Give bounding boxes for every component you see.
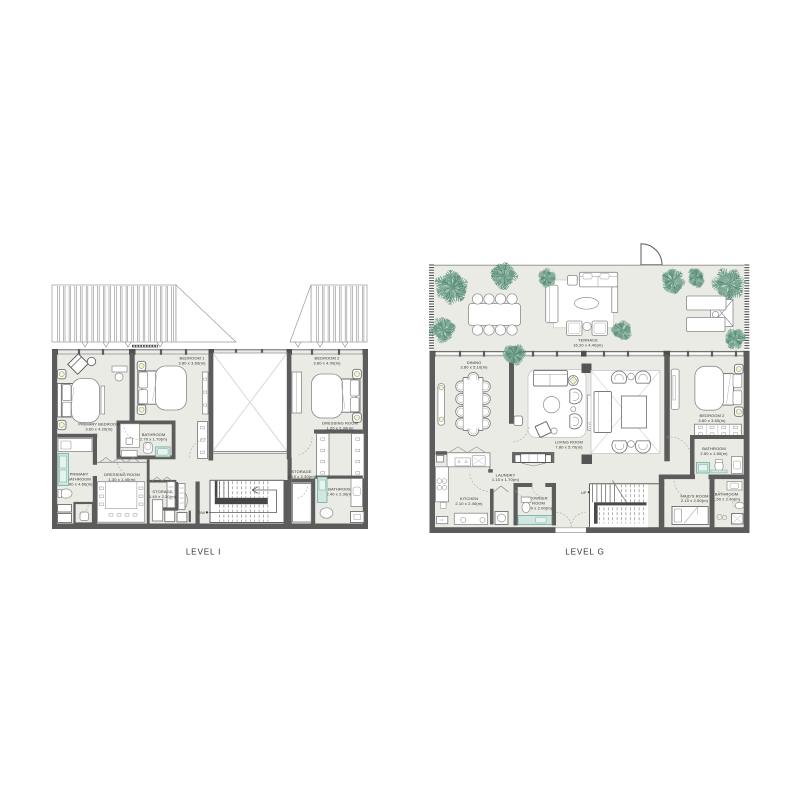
svg-text:1.50 x 2.40(m): 1.50 x 2.40(m) [713, 496, 741, 501]
svg-text:DW: DW [199, 511, 206, 515]
svg-text:1.20 x 2.30(m): 1.20 x 2.30(m) [326, 425, 354, 430]
svg-text:1.10 x 1.70(m): 1.10 x 1.70(m) [492, 477, 520, 482]
svg-text:3.80 x 5.10(m): 3.80 x 5.10(m) [460, 365, 488, 370]
svg-text:3.60 x 4.20(m): 3.60 x 4.20(m) [85, 426, 113, 431]
svg-text:1.90 x 4.60(m): 1.90 x 4.60(m) [65, 481, 93, 486]
svg-text:7.80 x 5.70(m): 7.80 x 5.70(m) [555, 444, 583, 449]
svg-text:LEVEL G: LEVEL G [565, 548, 604, 557]
svg-text:LEVEL I: LEVEL I [186, 548, 221, 557]
svg-text:1.40 x 2.20(m): 1.40 x 2.20(m) [149, 494, 177, 499]
svg-text:1.10 x 2.30(m): 1.10 x 2.30(m) [288, 474, 316, 479]
svg-text:UP: UP [581, 491, 587, 495]
svg-text:2.50 x 1.80(m): 2.50 x 1.80(m) [700, 451, 728, 456]
svg-text:1.30 x 1.40(m): 1.30 x 1.40(m) [108, 477, 136, 482]
svg-text:2.10 x 2.50(m): 2.10 x 2.50(m) [681, 498, 709, 503]
svg-text:3.80 x 3.60(m): 3.80 x 3.60(m) [698, 418, 726, 423]
svg-text:3.80 x 4.00(m): 3.80 x 4.00(m) [313, 360, 341, 365]
svg-text:2.10 x 2.40(m): 2.10 x 2.40(m) [455, 501, 483, 506]
svg-text:16.20 x 4.40(m): 16.20 x 4.40(m) [573, 342, 603, 347]
svg-text:2.40 x 2.30(m): 2.40 x 2.30(m) [326, 491, 354, 496]
svg-text:2.70 x 1.70(m): 2.70 x 1.70(m) [140, 437, 168, 442]
svg-text:3.80 x 3.60(m): 3.80 x 3.60(m) [178, 360, 206, 365]
